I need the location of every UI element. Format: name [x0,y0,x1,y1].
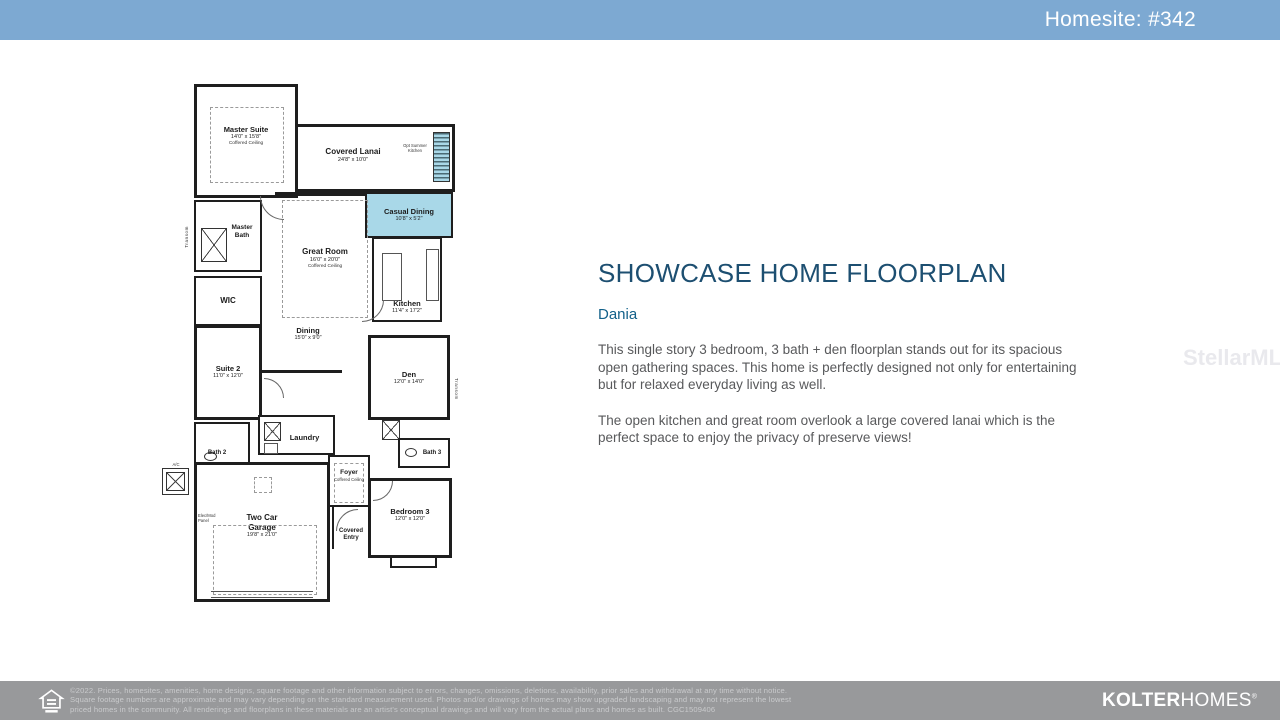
room-suite-2: Suite 2 11'0" x 12'0" [194,325,262,420]
kitchen-counter [426,249,439,301]
door-arc [264,378,284,398]
room-label: Bath 2 [198,450,236,457]
ac-unit [162,468,189,495]
room-bath-2: Bath 2 [194,422,250,466]
floorplan-drawing: Master Suite 14'0" x 15'8" Coffered Ceil… [160,78,465,612]
legal-line-3: priced homes in the community. All rende… [70,705,1085,715]
room-label: Casual Dining [367,207,451,216]
room-dims: 15'0" x 9'0" [272,335,344,342]
page-title: SHOWCASE HOME FLOORPLAN [598,258,1007,289]
kolter-homes-logo: KOLTERHOMES® [1102,690,1257,712]
room-great-room: Great Room 16'0" x 20'0" Coffered Ceilin… [282,200,368,318]
room-dims: 16'0" x 20'0" [283,257,367,264]
garage-parking-outline [213,525,317,595]
room-label: Suite 2 [197,364,259,373]
room-label: Bath 3 [416,450,448,457]
room-dims: 12'0" x 14'0" [371,379,447,386]
opt-summer-kitchen-label: Opt Summer Kitchen [400,143,430,154]
plan-name: Dania [598,306,637,323]
plan-description: This single story 3 bedroom, 3 bath + de… [598,341,1090,465]
transom-label-right: Transom [454,378,459,400]
homesite-label: Homesite: #342 [1045,8,1196,31]
room-label: Laundry [276,433,333,442]
room-foyer: Foyer Coffered Ceiling [328,455,370,507]
room-dims: 11'0" x 12'0" [197,373,259,380]
ac-unit-fan [166,472,185,491]
room-label: Foyer [330,469,368,477]
flyer-page: Homesite: #342 Master Suite 14'0" x 15'8… [0,0,1280,720]
kitchen-island [382,253,402,301]
bay-window [390,556,437,568]
logo-registered-mark: ® [1252,694,1257,701]
summer-kitchen-grill [433,132,450,182]
room-den: Den 12'0" x 14'0" [368,335,450,420]
description-paragraph-1: This single story 3 bedroom, 3 bath + de… [598,341,1090,394]
ac-label: A/C [164,462,188,467]
shower-fixture [201,228,227,262]
room-bath-3: Bath 3 [398,438,450,468]
room-label: Master Suite [197,125,295,134]
room-dims: 11'4" x 17'2" [374,308,440,315]
elec-panel-label: Elec/Mod Panel [198,513,220,524]
room-dining: Dining 15'0" x 9'0" [272,326,344,356]
room-label: Covered Lanai [302,147,404,157]
room-label: Master Bath [226,224,258,240]
garage-door [211,591,313,598]
door-arc [260,196,284,220]
room-dims: 10'8" x 5'2" [367,216,451,223]
transom-label-left: Transom [184,226,189,248]
room-note: Coffered Ceiling [330,477,368,482]
room-wic: WIC [194,276,262,326]
homesite-header-bar: Homesite: #342 [0,0,1280,40]
room-label: WIC [196,296,260,306]
room-dims: 24'8" x 10'0" [302,157,404,164]
legal-disclaimer: ©2022. Prices, homesites, amenities, hom… [70,686,1085,715]
description-paragraph-2: The open kitchen and great room overlook… [598,412,1090,447]
legal-line-2: Square footage numbers are approximate a… [70,695,1085,705]
equal-housing-icon [38,687,65,719]
footer-bar: ©2022. Prices, homesites, amenities, hom… [0,681,1280,720]
logo-homes: HOMES [1181,690,1252,711]
closet-fixture [382,420,400,440]
room-master-bath: Master Bath [194,200,262,272]
room-master-suite: Master Suite 14'0" x 15'8" Coffered Ceil… [194,84,298,198]
room-note: Coffered Ceiling [197,141,295,147]
wall-segment [262,370,342,373]
room-covered-lanai: Covered Lanai 24'8" x 10'0" Opt Summer K… [295,124,455,192]
room-garage: Two Car Garage 19'8" x 21'0" Elec/Mod Pa… [194,462,330,602]
garage-dashed-detail [254,477,272,493]
logo-kolter: KOLTER [1102,690,1181,711]
wall-segment [275,192,367,196]
stellar-mls-watermark: StellarMLS [1183,345,1280,371]
legal-line-1: ©2022. Prices, homesites, amenities, hom… [70,686,1085,696]
room-kitchen: Kitchen 11'4" x 17'2" [372,237,442,322]
room-label: Bedroom 3 [371,507,449,516]
room-dims: 12'0" x 12'0" [371,516,449,523]
room-laundry: Laundry [258,415,335,455]
room-casual-dining: Casual Dining 10'8" x 5'2" [365,192,453,238]
room-label: Den [371,370,447,379]
room-label: Great Room [283,247,367,257]
room-label: Dining [272,326,344,335]
laundry-counter [264,443,278,454]
room-note: Coffered Ceiling [283,264,367,270]
